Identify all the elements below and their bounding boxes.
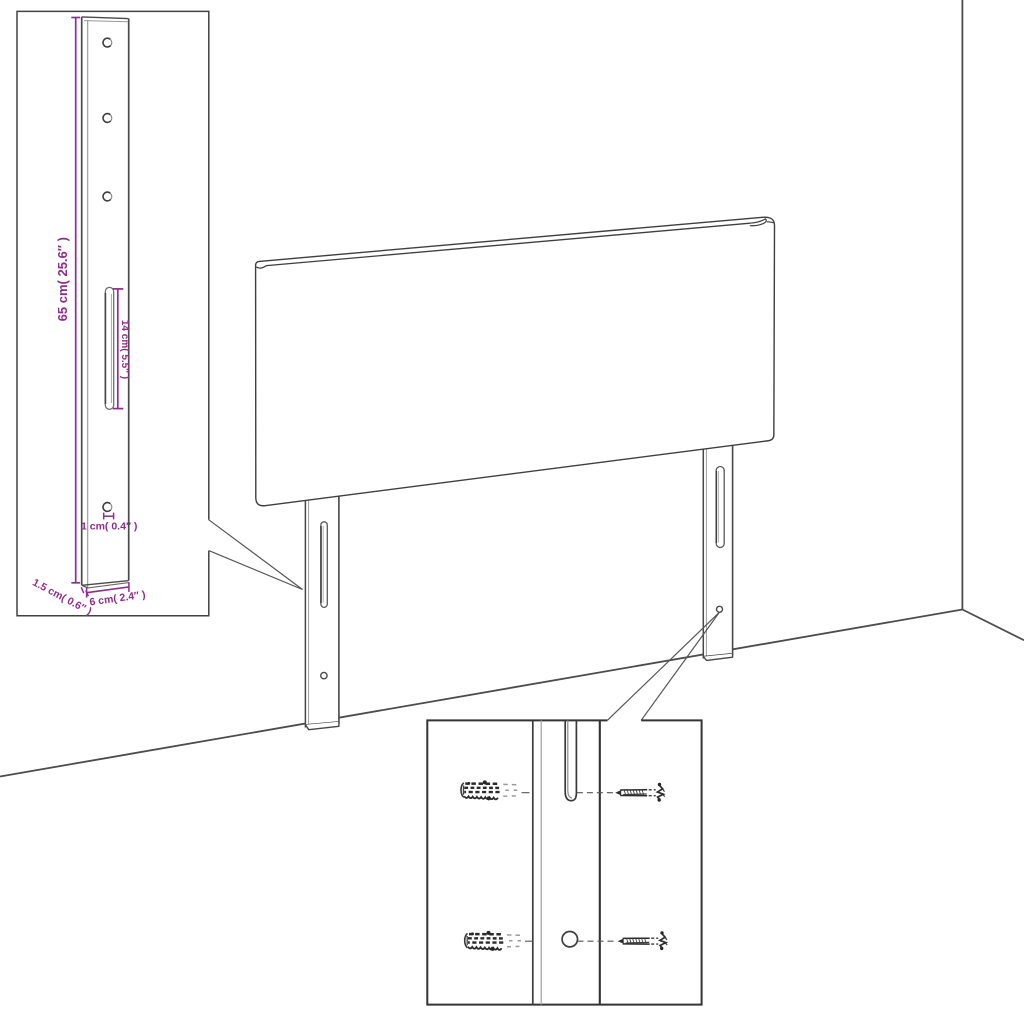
svg-text:65 cm( 25.6″ ): 65 cm( 25.6″ ): [55, 237, 70, 321]
svg-text:1.5 cm( 0.6″ ): 1.5 cm( 0.6″ ): [30, 577, 93, 618]
svg-text:1 cm( 0.4″ ): 1 cm( 0.4″ ): [81, 521, 137, 533]
svg-text:14 cm( 5.5″ ): 14 cm( 5.5″ ): [119, 320, 130, 379]
